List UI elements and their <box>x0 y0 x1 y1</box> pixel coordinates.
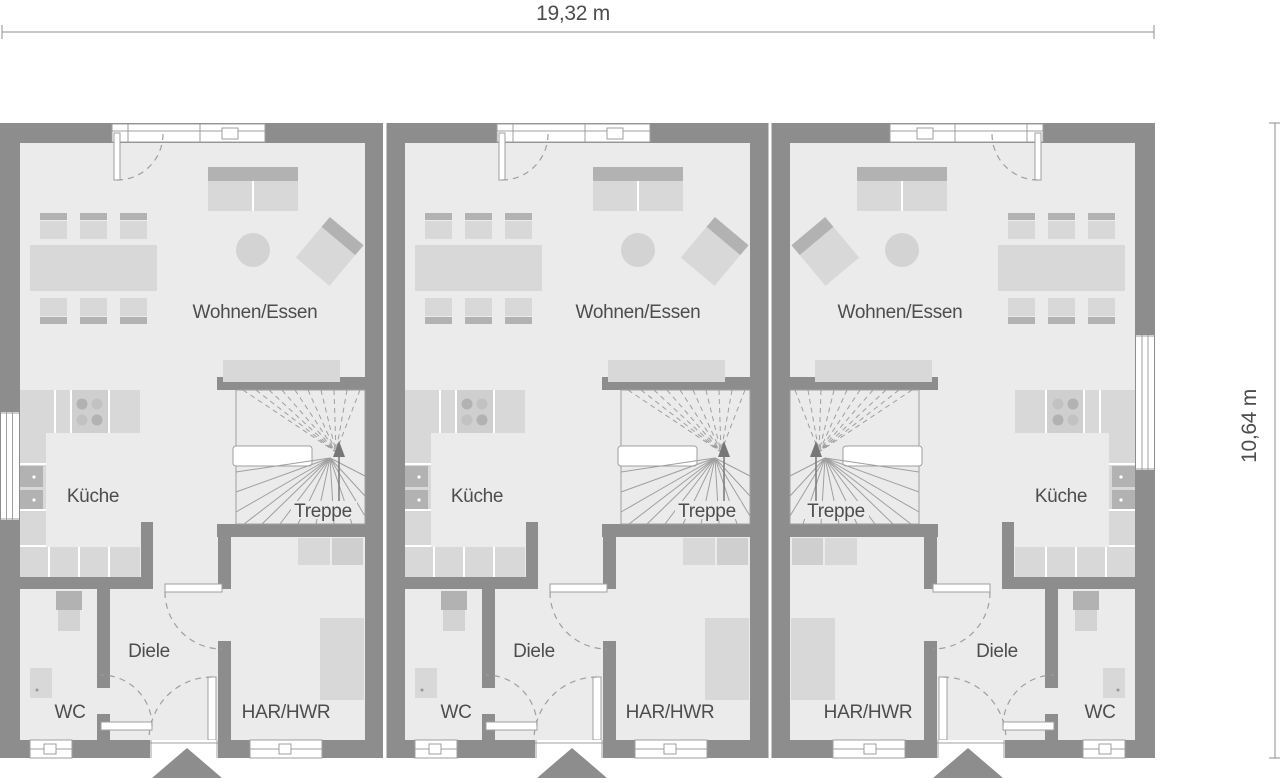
floor-plan: 19,32 m 10,64 m Wohnen/Essen Küche Trepp… <box>0 0 1280 778</box>
party-wall-gap-2 <box>769 123 772 758</box>
unit3-living-label: Wohnen/Essen <box>838 302 963 323</box>
dimension-right: 10,64 m <box>1238 123 1280 758</box>
building-shell <box>0 123 1155 758</box>
dimension-top: 19,32 m <box>2 2 1154 39</box>
floor <box>20 143 1135 740</box>
unit3-kitchen-label: Küche <box>1035 486 1087 507</box>
unit2-kitchen-label: Küche <box>451 486 503 507</box>
unit1-stairs-label: Treppe <box>294 501 352 522</box>
unit1-kitchen-label: Küche <box>67 486 119 507</box>
unit1-wc-label: WC <box>54 702 85 723</box>
unit3-hall-label: Diele <box>976 641 1018 662</box>
unit2-hall-label: Diele <box>513 641 555 662</box>
left-kitchen-window <box>1 412 19 520</box>
unit3-utility-label: HAR/HWR <box>824 702 913 723</box>
unit3-stairs-label: Treppe <box>807 501 865 522</box>
unit1-utility-label: HAR/HWR <box>242 702 331 723</box>
party-wall-gap-1 <box>383 123 387 758</box>
unit2-wc-label: WC <box>440 702 471 723</box>
unit2-stairs-label: Treppe <box>678 501 736 522</box>
unit2-utility-label: HAR/HWR <box>626 702 715 723</box>
unit2-living-label: Wohnen/Essen <box>576 302 701 323</box>
floor-plan-page: 19,32 m 10,64 m Wohnen/Essen Küche Trepp… <box>0 0 1280 778</box>
dimension-width-label: 19,32 m <box>536 2 610 25</box>
right-kitchen-window <box>1136 335 1154 470</box>
unit1-hall-label: Diele <box>128 641 170 662</box>
unit1-living-label: Wohnen/Essen <box>193 302 318 323</box>
unit3-wc-label: WC <box>1084 702 1115 723</box>
dimension-height-label: 10,64 m <box>1238 389 1261 463</box>
